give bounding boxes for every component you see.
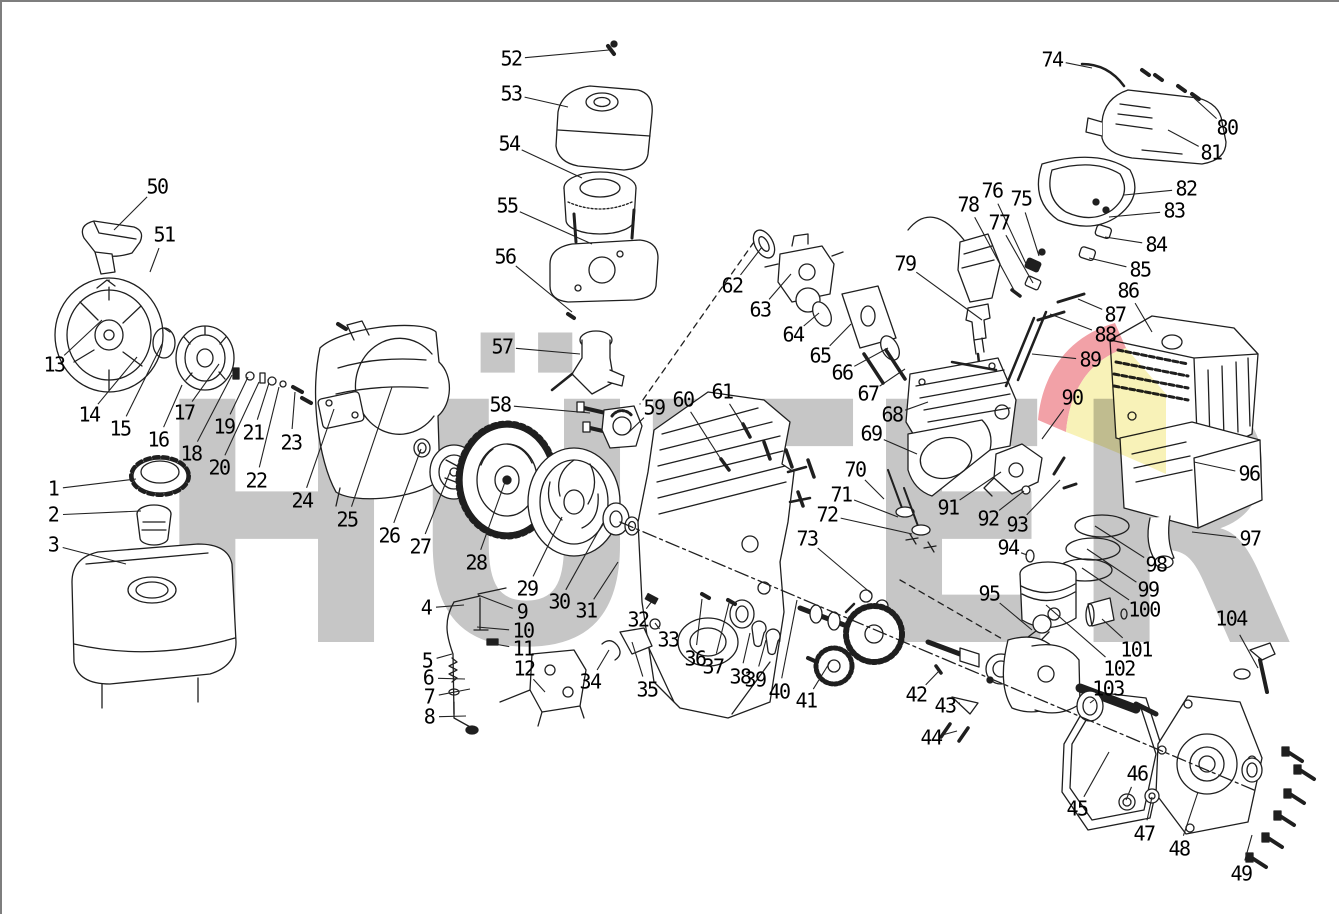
fuel-filter-drawing bbox=[137, 505, 171, 545]
carb-gasket-a-drawing bbox=[749, 227, 779, 262]
exploded-diagram-svg: HÜTER bbox=[2, 2, 1339, 914]
spark-plug-cap-drawing bbox=[908, 217, 1000, 302]
muffler-shield-drawing bbox=[1086, 90, 1226, 164]
cover-screw-drawing bbox=[608, 41, 617, 54]
rope-pulley-drawing bbox=[176, 326, 234, 390]
starter-grip-drawing bbox=[82, 221, 141, 274]
air-cleaner-cover-drawing bbox=[556, 86, 652, 170]
parts-diagram-page: HÜTER bbox=[0, 0, 1339, 914]
cover-roller-drawing bbox=[1242, 758, 1262, 782]
throttle-control-drawing bbox=[602, 406, 642, 448]
muffler-gasket-drawing bbox=[1038, 157, 1135, 226]
carburetor-drawing bbox=[765, 234, 843, 312]
fuel-cap-drawing bbox=[131, 457, 189, 495]
cooling-fan-drawing bbox=[528, 448, 620, 556]
recoil-starter-drawing bbox=[55, 278, 163, 392]
